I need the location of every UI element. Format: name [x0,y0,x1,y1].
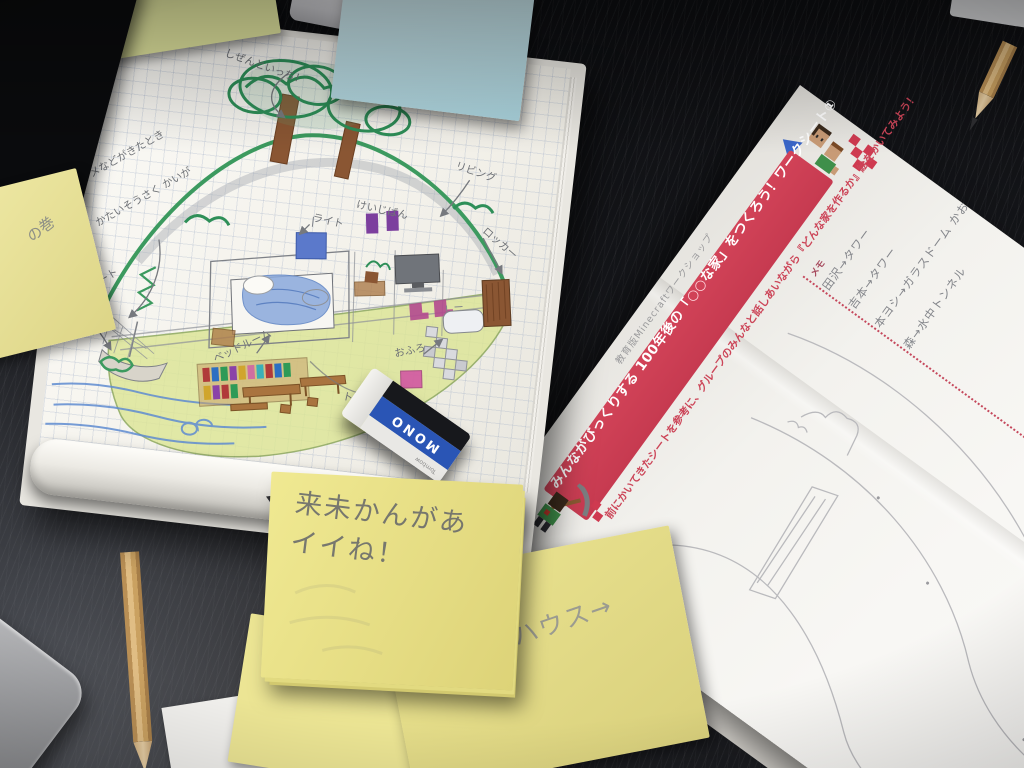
annotation: リビング [454,159,498,185]
ladder [137,266,156,312]
annotation: けいじばん [355,199,409,222]
show-through-marks [261,472,523,691]
desk-photo-scene: Mine 国大 教育版Minecraftワークショップ みんながびっくりする 1… [0,0,1024,768]
pencil-lead [966,117,979,133]
sticky-left-text: の巻 [22,211,59,246]
bookshelf [197,358,309,407]
sticky-note-praise: 来未かんがあ イイね！ [261,472,523,691]
annotation: ライト [311,212,344,231]
pencil-cone [133,741,154,768]
